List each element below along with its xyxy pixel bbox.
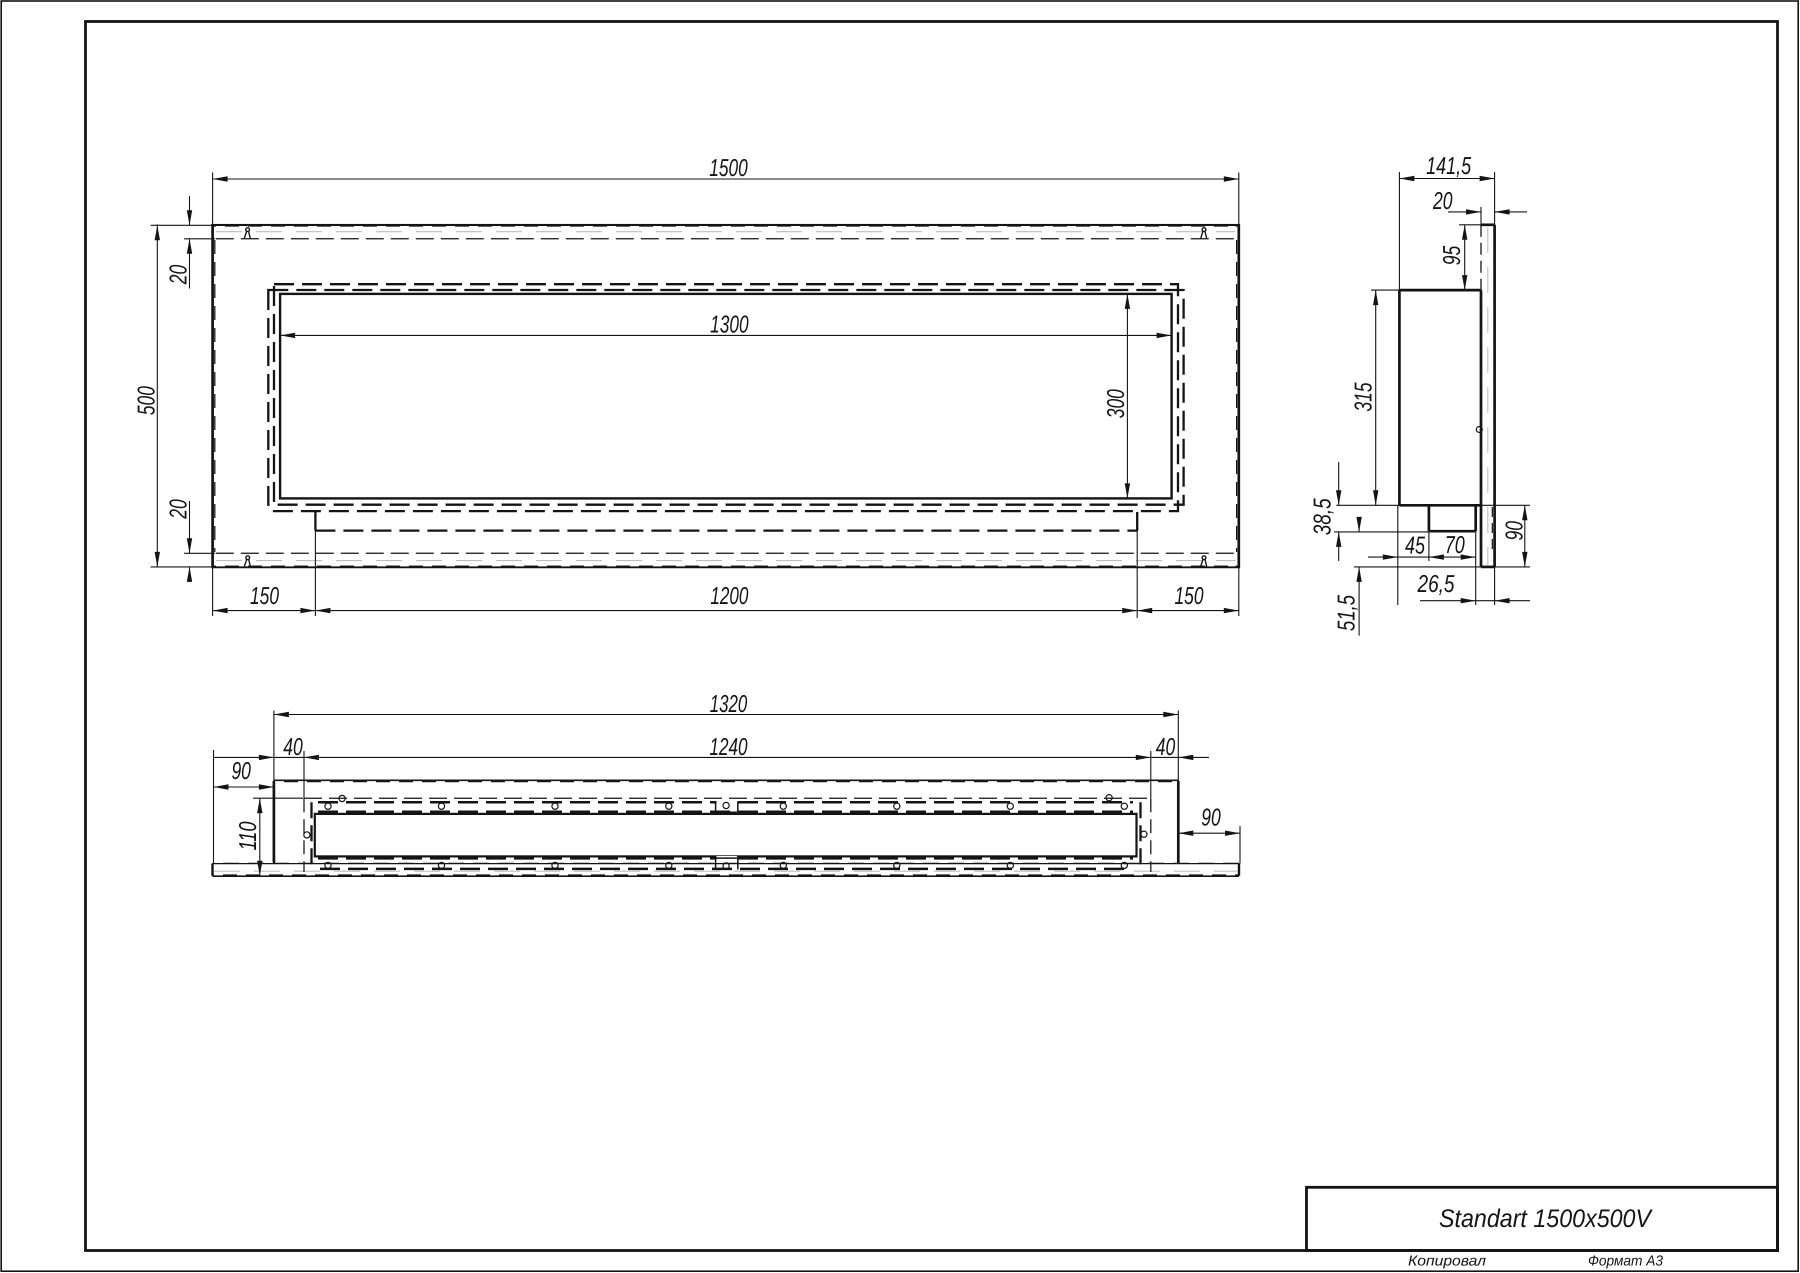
svg-text:40: 40: [283, 734, 303, 761]
svg-text:1500: 1500: [709, 155, 748, 182]
svg-text:90: 90: [231, 758, 251, 785]
svg-text:38,5: 38,5: [1310, 498, 1337, 535]
svg-text:Формат А3: Формат А3: [1588, 1254, 1663, 1270]
svg-text:40: 40: [1156, 734, 1176, 761]
svg-text:90: 90: [1501, 521, 1528, 541]
svg-text:1320: 1320: [710, 691, 748, 718]
svg-text:45: 45: [1405, 533, 1425, 560]
svg-text:1300: 1300: [710, 311, 749, 338]
svg-text:90: 90: [1201, 805, 1221, 832]
svg-text:141,5: 141,5: [1426, 153, 1471, 180]
svg-text:70: 70: [1445, 532, 1465, 559]
svg-text:26,5: 26,5: [1417, 571, 1455, 598]
svg-text:1240: 1240: [710, 734, 748, 761]
svg-text:20: 20: [165, 499, 192, 519]
svg-text:Standart 1500x500V: Standart 1500x500V: [1439, 1205, 1653, 1233]
svg-text:20: 20: [165, 264, 192, 284]
svg-text:Копировал: Копировал: [1408, 1254, 1486, 1270]
svg-text:500: 500: [133, 386, 160, 415]
svg-text:300: 300: [1103, 389, 1130, 418]
svg-text:95: 95: [1439, 245, 1466, 265]
svg-text:110: 110: [235, 821, 262, 850]
svg-text:1200: 1200: [710, 583, 748, 610]
svg-text:315: 315: [1351, 382, 1378, 411]
svg-text:150: 150: [1175, 583, 1204, 610]
svg-text:51,5: 51,5: [1334, 595, 1361, 631]
svg-text:150: 150: [250, 583, 279, 610]
svg-text:20: 20: [1432, 188, 1452, 215]
